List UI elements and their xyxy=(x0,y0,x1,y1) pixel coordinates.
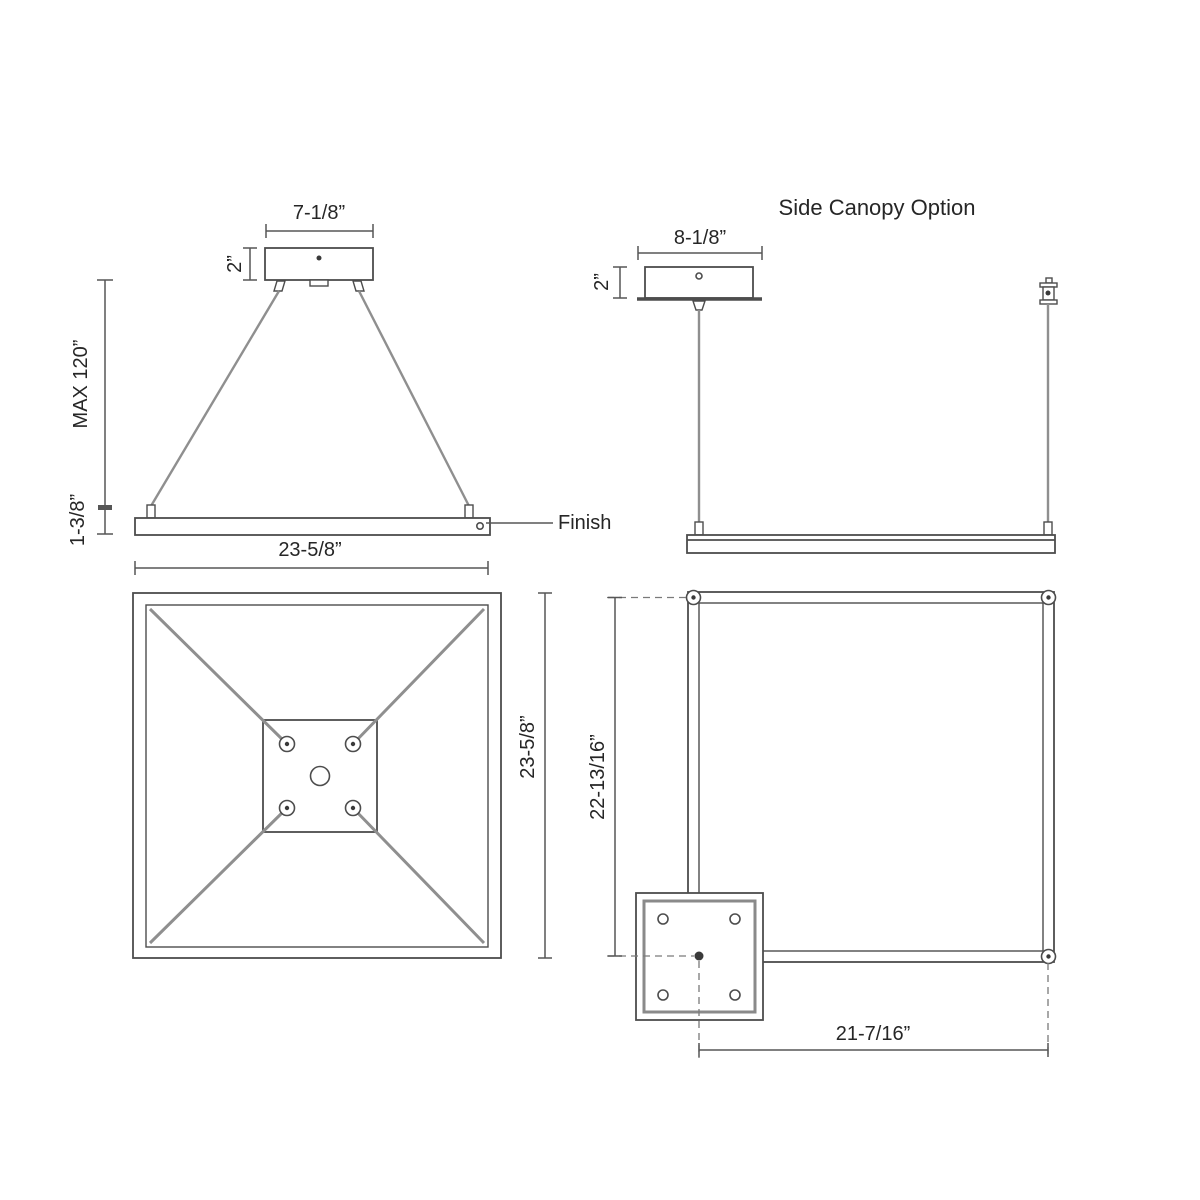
plan-cable-anchor-top-left xyxy=(280,737,295,752)
canopy-cable-gripper-right xyxy=(353,281,364,291)
side-canopy xyxy=(645,267,753,298)
dimension-canopy-width: 7-1/8” xyxy=(266,202,373,238)
side-canopy-option-title: Side Canopy Option xyxy=(779,195,976,220)
canopy-cable-gripper-left xyxy=(274,281,285,291)
side-canopy-width-label: 8-1/8” xyxy=(674,227,726,249)
dimension-fixture-width: 23-5/8” xyxy=(135,539,488,575)
fixture-height-label: 1-3/8” xyxy=(67,494,89,546)
dimension-canopy-height: 2” xyxy=(224,248,257,280)
dimension-suspension-max: MAX 120” 1-3/8” xyxy=(67,280,113,546)
bar-cable-gripper-right xyxy=(465,505,473,518)
plan-view: 23-5/8” xyxy=(133,593,552,958)
suspension-max-label: MAX 120” xyxy=(70,340,92,429)
side-canopy-gripper-cone xyxy=(693,301,705,310)
side-canopy-screw xyxy=(696,273,702,279)
dimension-width-offset: 21-7/16” xyxy=(699,1023,1048,1057)
side-plan-anchor-top-left xyxy=(687,591,701,605)
width-offset-label: 21-7/16” xyxy=(836,1023,911,1045)
suspension-cable-left xyxy=(151,291,279,506)
side-plan-canopy-hole-3 xyxy=(658,990,668,1000)
plan-cable-anchor-bottom-left xyxy=(280,801,295,816)
front-canopy xyxy=(265,248,373,280)
canopy-stem xyxy=(310,280,328,286)
finish-label: Finish xyxy=(558,512,611,534)
canopy-width-label: 7-1/8” xyxy=(293,202,345,224)
side-canopy-height-label: 2” xyxy=(591,273,613,291)
side-plan-anchor-top-right xyxy=(1042,591,1056,605)
plan-cable-anchor-bottom-right xyxy=(346,801,361,816)
side-plan-canopy-hole-2 xyxy=(730,914,740,924)
canopy-screw-dot xyxy=(317,256,322,261)
side-plan-anchor-bottom-right xyxy=(1042,950,1056,964)
dimension-drawing-svg: 7-1/8” 2” Finish xyxy=(0,0,1200,1200)
fixture-width-label: 23-5/8” xyxy=(278,539,341,561)
bar-cable-gripper-left xyxy=(147,505,155,518)
side-canopy-option-view: Side Canopy Option 8-1/8” 2” xyxy=(591,195,1057,553)
gripper-cable-dot xyxy=(1046,291,1051,296)
front-elevation-view: 7-1/8” 2” Finish xyxy=(67,202,611,575)
plan-width-label: 23-5/8” xyxy=(517,715,539,778)
side-plan-canopy-hole-1 xyxy=(658,914,668,924)
suspension-cable-right xyxy=(359,291,469,506)
spec-sheet-drawing: 7-1/8” 2” Finish xyxy=(0,0,1200,1200)
side-bar-gripper-right xyxy=(1044,522,1052,535)
ceiling-cable-gripper xyxy=(1040,278,1057,304)
side-fixture-bar xyxy=(687,535,1055,553)
dimension-height-offset: 22-13/16” xyxy=(587,598,622,957)
dimension-side-canopy-height: 2” xyxy=(591,267,627,298)
plan-canopy-center-hole xyxy=(311,767,330,786)
plan-cable-anchor-top-right xyxy=(346,737,361,752)
finish-callout-hole xyxy=(477,523,483,529)
side-canopy-plan-view: 22-13/16” 21-7/16” xyxy=(587,591,1056,1059)
side-bar-gripper-left xyxy=(695,522,703,535)
side-plan-canopy-center-dot xyxy=(695,952,704,961)
height-offset-label: 22-13/16” xyxy=(587,734,609,820)
finish-callout: Finish xyxy=(486,512,611,534)
dimension-side-canopy-width: 8-1/8” xyxy=(638,227,762,260)
canopy-height-label: 2” xyxy=(224,255,246,273)
side-plan-canopy-hole-4 xyxy=(730,990,740,1000)
dimension-plan-width: 23-5/8” xyxy=(517,593,552,958)
fixture-bar xyxy=(135,518,490,535)
